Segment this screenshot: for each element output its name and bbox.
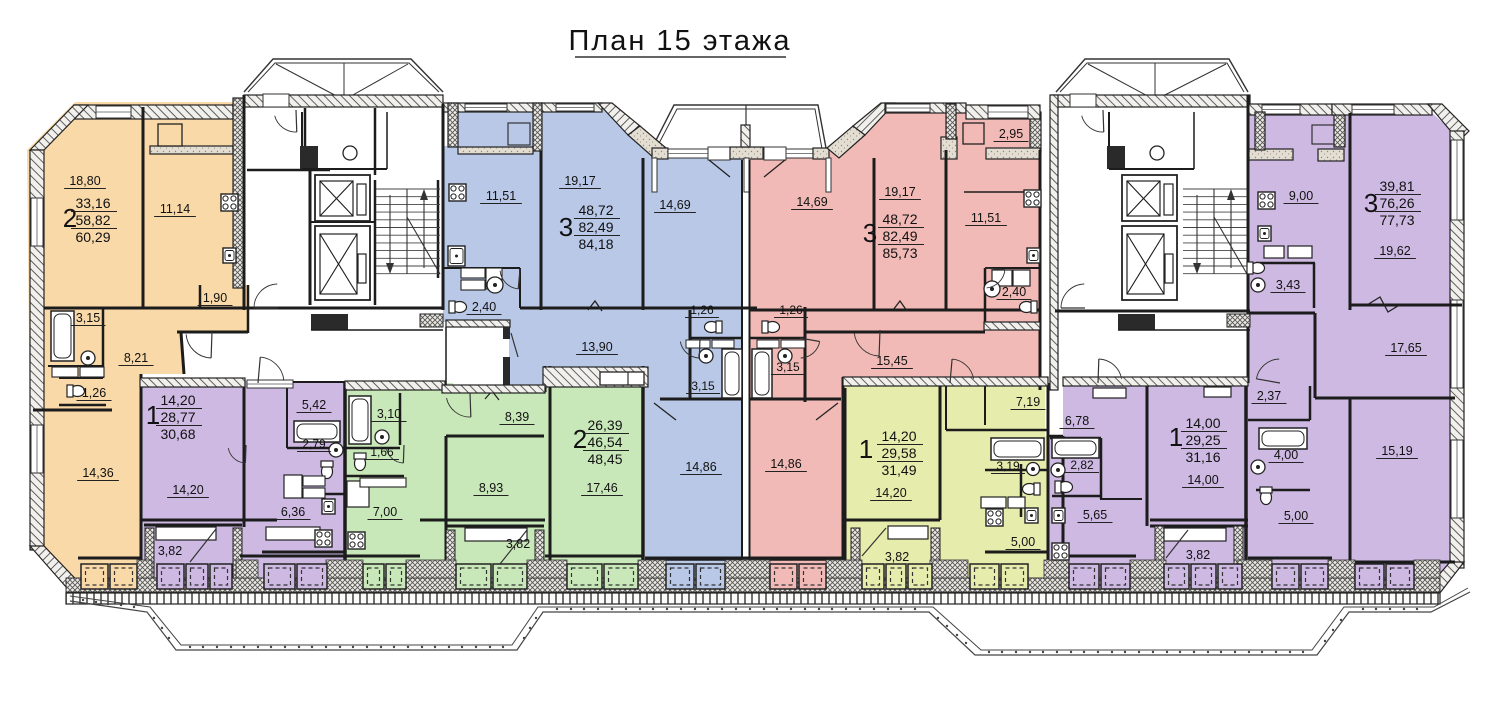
svg-text:82,49: 82,49 xyxy=(578,219,613,235)
svg-text:14,86: 14,86 xyxy=(770,457,801,471)
svg-text:14,20: 14,20 xyxy=(160,392,195,408)
svg-text:7,00: 7,00 xyxy=(373,505,397,519)
svg-text:3,19: 3,19 xyxy=(996,459,1020,473)
svg-text:46,54: 46,54 xyxy=(587,434,622,450)
svg-text:19,17: 19,17 xyxy=(884,185,915,199)
svg-text:3: 3 xyxy=(559,212,573,242)
svg-text:39,81: 39,81 xyxy=(1379,178,1414,194)
svg-text:1: 1 xyxy=(1169,422,1183,452)
svg-text:48,72: 48,72 xyxy=(578,202,613,218)
svg-text:3: 3 xyxy=(863,218,877,248)
svg-text:33,16: 33,16 xyxy=(75,195,110,211)
svg-text:2,40: 2,40 xyxy=(472,300,496,314)
svg-text:8,21: 8,21 xyxy=(124,351,148,365)
svg-text:5,65: 5,65 xyxy=(1083,508,1107,522)
svg-text:3,82: 3,82 xyxy=(885,550,909,564)
svg-text:2: 2 xyxy=(573,424,587,454)
svg-text:6,78: 6,78 xyxy=(1065,414,1089,428)
svg-text:4,00: 4,00 xyxy=(1274,448,1298,462)
svg-text:1,26: 1,26 xyxy=(82,386,106,400)
svg-text:58,82: 58,82 xyxy=(75,212,110,228)
svg-text:13,90: 13,90 xyxy=(581,340,612,354)
svg-text:1,66: 1,66 xyxy=(370,445,394,459)
svg-text:14,86: 14,86 xyxy=(685,460,716,474)
svg-text:2,37: 2,37 xyxy=(1257,389,1281,403)
svg-text:5,42: 5,42 xyxy=(302,398,326,412)
svg-text:2,40: 2,40 xyxy=(1002,285,1026,299)
svg-text:14,00: 14,00 xyxy=(1185,415,1220,431)
svg-text:28,77: 28,77 xyxy=(160,409,195,425)
svg-text:14,20: 14,20 xyxy=(881,428,916,444)
svg-text:План 15 этажа: План 15 этажа xyxy=(568,25,791,57)
svg-text:60,29: 60,29 xyxy=(75,229,110,245)
svg-text:2,79: 2,79 xyxy=(302,437,326,451)
svg-text:3,82: 3,82 xyxy=(1186,548,1210,562)
svg-text:14,20: 14,20 xyxy=(172,483,203,497)
svg-text:31,16: 31,16 xyxy=(1185,449,1220,465)
svg-text:11,51: 11,51 xyxy=(486,189,516,203)
svg-text:3,82: 3,82 xyxy=(158,544,182,558)
svg-text:29,25: 29,25 xyxy=(1185,432,1220,448)
svg-text:8,93: 8,93 xyxy=(479,481,503,495)
svg-text:48,72: 48,72 xyxy=(882,211,917,227)
svg-text:17,65: 17,65 xyxy=(1390,341,1421,355)
svg-text:84,18: 84,18 xyxy=(578,236,613,252)
svg-text:30,68: 30,68 xyxy=(160,426,195,442)
svg-text:31,49: 31,49 xyxy=(881,462,916,478)
svg-text:9,00: 9,00 xyxy=(1289,189,1313,203)
svg-text:7,19: 7,19 xyxy=(1016,395,1040,409)
svg-text:14,69: 14,69 xyxy=(659,198,690,212)
svg-text:76,26: 76,26 xyxy=(1379,195,1414,211)
svg-text:3,15: 3,15 xyxy=(76,311,100,325)
svg-text:11,51: 11,51 xyxy=(971,211,1001,225)
svg-text:3,10: 3,10 xyxy=(377,407,401,421)
svg-text:19,62: 19,62 xyxy=(1379,244,1410,258)
svg-text:2,95: 2,95 xyxy=(999,127,1023,141)
svg-text:26,39: 26,39 xyxy=(587,417,622,433)
svg-text:3: 3 xyxy=(1364,188,1378,218)
svg-text:14,20: 14,20 xyxy=(875,486,906,500)
svg-text:48,45: 48,45 xyxy=(587,451,622,467)
svg-text:3,43: 3,43 xyxy=(1276,278,1300,292)
svg-text:3,15: 3,15 xyxy=(691,379,715,393)
svg-text:82,49: 82,49 xyxy=(882,228,917,244)
svg-text:8,39: 8,39 xyxy=(505,410,529,424)
svg-text:18,80: 18,80 xyxy=(69,174,100,188)
svg-text:15,45: 15,45 xyxy=(876,354,907,368)
svg-text:19,17: 19,17 xyxy=(564,174,595,188)
svg-text:6,36: 6,36 xyxy=(281,505,305,519)
svg-text:14,00: 14,00 xyxy=(1187,473,1218,487)
svg-text:14,36: 14,36 xyxy=(82,466,113,480)
svg-text:14,69: 14,69 xyxy=(796,195,827,209)
svg-text:1,26: 1,26 xyxy=(690,303,714,317)
svg-text:17,46: 17,46 xyxy=(586,481,617,495)
svg-text:29,58: 29,58 xyxy=(881,445,916,461)
svg-text:2,82: 2,82 xyxy=(1070,458,1094,472)
svg-text:3,15: 3,15 xyxy=(776,360,800,374)
svg-text:1,90: 1,90 xyxy=(203,291,227,305)
svg-text:85,73: 85,73 xyxy=(882,245,917,261)
svg-text:11,14: 11,14 xyxy=(160,202,190,216)
svg-text:5,00: 5,00 xyxy=(1011,535,1035,549)
svg-text:3,82: 3,82 xyxy=(506,537,530,551)
svg-text:15,19: 15,19 xyxy=(1381,444,1412,458)
svg-text:5,00: 5,00 xyxy=(1284,509,1308,523)
svg-text:77,73: 77,73 xyxy=(1379,212,1414,228)
svg-text:1,26: 1,26 xyxy=(779,303,803,317)
svg-text:1: 1 xyxy=(859,434,873,464)
